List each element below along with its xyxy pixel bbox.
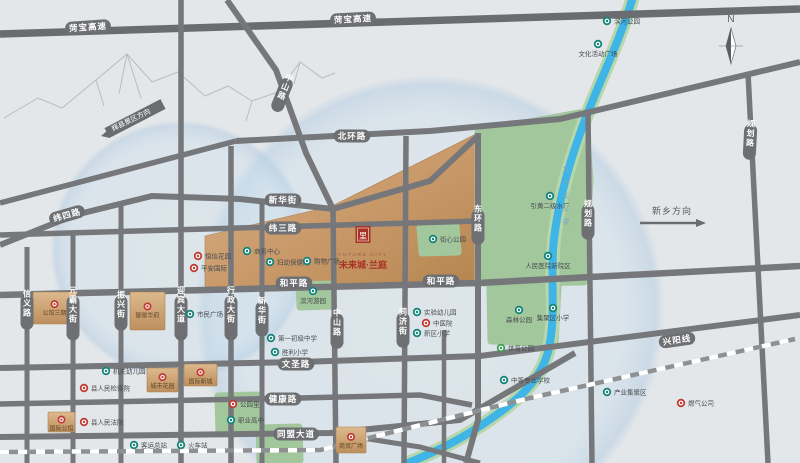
- road-label: 和平路: [423, 275, 460, 288]
- building-label: 城市花园: [150, 382, 174, 390]
- poi-label: 滨河公园: [614, 17, 640, 26]
- building-marker-icon: [347, 433, 355, 441]
- poi-marker-icon: [271, 348, 279, 356]
- poi-label: 商务中心: [254, 247, 281, 256]
- poi-marker-icon: [190, 264, 198, 272]
- road-label-text: 新华街: [269, 195, 298, 205]
- poi-marker-icon: [429, 235, 437, 243]
- poi-marker-icon: [243, 247, 251, 255]
- poi-label: 公园里: [240, 401, 260, 409]
- road-label-text: 和平路: [427, 276, 456, 286]
- road-label-text: 振兴街: [116, 290, 125, 319]
- poi-marker-icon: [546, 192, 554, 200]
- poi-label: 森林公园: [506, 315, 532, 324]
- road-label: 北环路: [334, 130, 371, 143]
- road-label: 菏宝高速: [330, 11, 376, 26]
- poi-marker-icon: [229, 400, 237, 408]
- poi-marker-icon: [303, 257, 311, 265]
- poi-label: 机关幼儿园: [113, 367, 146, 376]
- poi-label: 燃气公司: [688, 399, 714, 408]
- poi-marker-icon: [603, 388, 611, 396]
- poi-marker-icon: [267, 334, 275, 342]
- poi-marker-icon: [422, 319, 430, 327]
- poi-marker-icon: [603, 17, 611, 25]
- project-name-cn: 未来城·兰庭: [338, 259, 388, 270]
- poi-marker-icon: [413, 329, 421, 337]
- poi-label: 中医院: [433, 319, 453, 328]
- poi-marker-icon: [80, 418, 88, 426]
- poi-teal: 商务中心: [243, 247, 281, 256]
- poi-teal: 新区小学: [413, 329, 451, 338]
- poi-marker-icon: [497, 344, 505, 352]
- road-label-text: 北环路: [338, 131, 367, 141]
- poi-label: 县人民法院: [91, 418, 124, 427]
- road-label-text: 菏宝高速: [334, 13, 372, 25]
- road-label-text: 纬三路: [269, 223, 298, 233]
- poi-marker-icon: [500, 376, 508, 384]
- road-label-text: 东环路: [474, 204, 483, 233]
- road-label-text: 文圣路: [282, 359, 311, 369]
- road-label: 文圣路: [278, 358, 315, 371]
- building-label: 公馆三期: [42, 309, 66, 317]
- poi-red: 恒信花园: [194, 252, 231, 261]
- road-label: 和平路: [276, 277, 313, 290]
- poi-marker-icon: [677, 399, 685, 407]
- poi-label: 实验幼儿园: [424, 308, 457, 317]
- poi-teal: 实验幼儿园: [413, 308, 457, 317]
- road-label-text: 迎宾大道: [177, 285, 185, 324]
- road-label: 纬三路: [265, 222, 302, 235]
- poi-marker-icon: [80, 384, 88, 392]
- road-tongji-street: [404, 136, 406, 463]
- building-marker-icon: [51, 300, 59, 308]
- poi-label: 火车站: [188, 441, 208, 450]
- building-marker-icon: [144, 302, 152, 310]
- poi-red: 公园里: [229, 400, 260, 409]
- poi-red: 县人民法院: [80, 418, 124, 427]
- xinxiang-direction-label: 新乡方向: [652, 205, 692, 216]
- building-label: 商贸广场: [339, 442, 363, 450]
- poi-marker-icon: [227, 416, 235, 424]
- poi-label: 街心公园: [440, 235, 466, 244]
- poi-label: 滨河游园: [300, 296, 326, 305]
- poi-label: 胜利小学: [282, 348, 309, 357]
- building-block: 御景华府: [130, 292, 165, 330]
- poi-label: 中等专业学校: [511, 376, 551, 385]
- road-label-text: 规划路: [584, 199, 593, 228]
- poi-teal: 街心公园: [429, 235, 466, 244]
- poi-label: 职业高中: [238, 416, 264, 425]
- poi-label: 新区小学: [424, 329, 451, 338]
- poi-red: 中医院: [422, 319, 453, 328]
- poi-marker-icon: [130, 441, 138, 449]
- poi-label: 购物广场: [314, 257, 341, 266]
- road-label-text: 健康路: [269, 394, 298, 404]
- building-footprint: [130, 292, 165, 330]
- poi-teal: 滨河公园: [603, 17, 640, 26]
- road-label-text: 新华街: [257, 296, 266, 325]
- poi-teal: 机关幼儿园: [102, 367, 146, 376]
- poi-marker-icon: [102, 367, 110, 375]
- poi-red: 燃气公司: [677, 399, 714, 408]
- road-label-text: 信义路: [22, 289, 32, 318]
- poi-marker-icon: [309, 287, 317, 295]
- building-block: 商贸广场: [336, 427, 366, 453]
- project-name-en: FUTURE CITY: [338, 252, 387, 258]
- road-label-text: 同济街: [398, 308, 408, 336]
- poi-label: 引黄二级水厂: [531, 201, 571, 210]
- poi-label: 市民广场: [197, 310, 224, 319]
- poi-teal: 购物广场: [303, 257, 341, 266]
- poi-marker-icon: [413, 308, 421, 316]
- building-label: 国际公馆: [49, 425, 73, 433]
- building-block: 城市花园: [147, 368, 178, 392]
- poi-label: 人民医院新院区: [525, 261, 571, 270]
- poi-marker-icon: [186, 310, 194, 318]
- road-label-text: 和平路: [280, 278, 309, 288]
- poi-marker-icon: [594, 40, 602, 48]
- building-label: 国际新城: [188, 377, 212, 385]
- poi-marker-icon: [544, 252, 552, 260]
- poi-label: 产业集聚区: [614, 388, 647, 397]
- compass-north-label: N: [727, 14, 734, 25]
- poi-label: 第一初级中学: [278, 334, 318, 343]
- poi-label: 县人民检察院: [91, 384, 131, 393]
- poi-green: 体育公园: [497, 344, 534, 353]
- poi-marker-icon: [194, 252, 202, 260]
- building-marker-icon: [197, 368, 205, 376]
- poi-teal: 职业高中: [227, 416, 264, 425]
- poi-label: 恒信花园: [205, 252, 231, 261]
- poi-label: 集聚区小学: [537, 313, 570, 322]
- poi-teal: 产业集聚区: [603, 388, 647, 397]
- poi-marker-icon: [266, 258, 274, 266]
- building-marker-icon: [58, 416, 66, 424]
- poi-teal: 火车站: [177, 441, 208, 450]
- road-label: 健康路: [265, 393, 302, 406]
- poi-label: 平安国际: [201, 264, 228, 273]
- map-canvas: 共产主义渠公馆三期御景华府城市花园国际新城国际公馆商贸广场菏宝高速菏宝高速北环路…: [0, 0, 800, 463]
- building-block: 国际公馆: [48, 412, 75, 433]
- road-label-text: 同盟大道: [277, 429, 315, 439]
- poi-teal: 胜利小学: [271, 348, 309, 357]
- poi-teal: 市民广场: [186, 310, 224, 319]
- road-label: 新华街: [265, 194, 302, 207]
- poi-label: 客运总站: [141, 441, 168, 450]
- road-label-text: 元霸大街: [68, 286, 77, 324]
- project-seal-char: 里: [359, 232, 367, 241]
- poi-label: 文化活动广场: [579, 49, 619, 58]
- building-marker-icon: [159, 373, 167, 381]
- poi-marker-icon: [549, 304, 557, 312]
- road-label-text: 行政大街: [226, 285, 235, 324]
- poi-label: 体育公园: [508, 344, 534, 353]
- road-label-text: 中山路: [333, 308, 342, 337]
- building-block: 国际新城: [184, 364, 217, 386]
- poi-marker-icon: [515, 306, 523, 314]
- road-label: 同盟大道: [273, 428, 319, 441]
- poi-marker-icon: [177, 441, 185, 449]
- poi-teal: 客运总站: [130, 441, 168, 450]
- poi-red: 平安国际: [190, 264, 228, 273]
- building-label: 御景华府: [135, 311, 159, 319]
- location-map: 共产主义渠公馆三期御景华府城市花园国际新城国际公馆商贸广场菏宝高速菏宝高速北环路…: [0, 0, 800, 463]
